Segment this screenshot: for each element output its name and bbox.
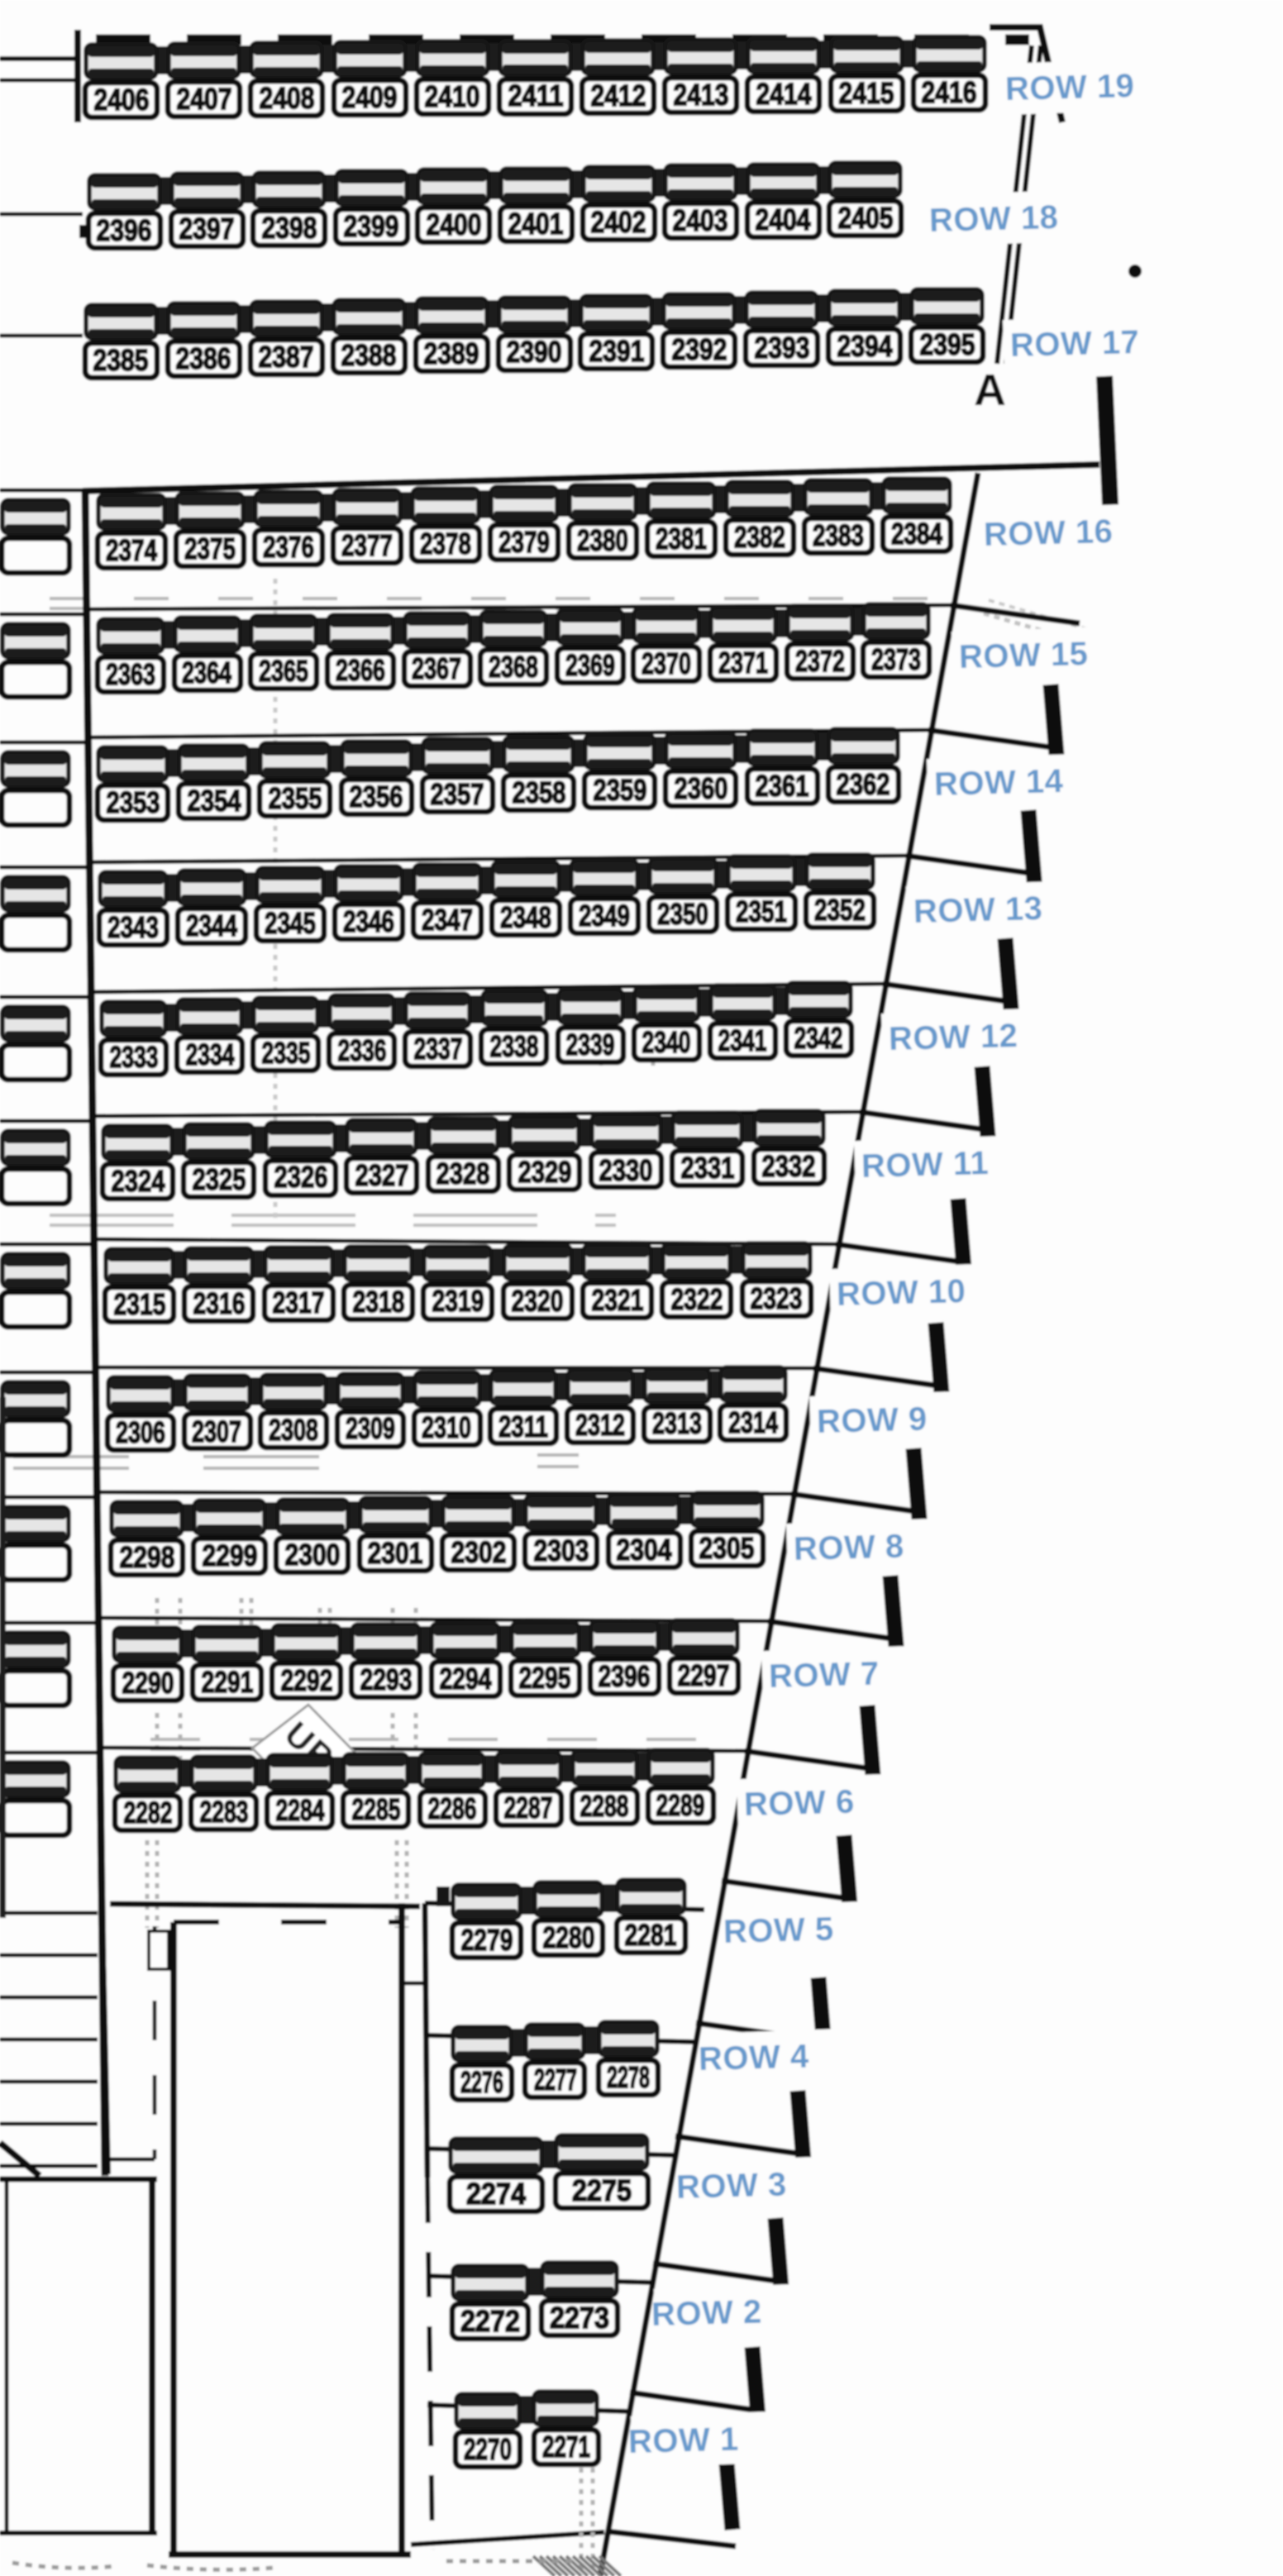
- svg-text:2403: 2403: [673, 203, 728, 237]
- svg-text:2384: 2384: [891, 517, 942, 551]
- svg-text:2389: 2389: [424, 336, 479, 370]
- svg-text:2347: 2347: [422, 903, 473, 937]
- svg-text:2278: 2278: [607, 2060, 650, 2094]
- svg-text:2346: 2346: [343, 904, 394, 938]
- svg-text:2313: 2313: [652, 1406, 702, 1440]
- svg-text:ROW 5: ROW 5: [723, 1911, 834, 1950]
- svg-text:2377: 2377: [341, 528, 393, 562]
- svg-text:2302: 2302: [451, 1535, 507, 1569]
- svg-text:2340: 2340: [642, 1025, 691, 1059]
- svg-text:2361: 2361: [756, 769, 809, 803]
- svg-text:2271: 2271: [542, 2430, 590, 2464]
- svg-text:2282: 2282: [124, 1796, 173, 1829]
- svg-text:2376: 2376: [263, 530, 314, 564]
- svg-text:2375: 2375: [184, 532, 236, 565]
- svg-text:2370: 2370: [641, 646, 691, 680]
- svg-text:2371: 2371: [718, 646, 768, 680]
- svg-text:2330: 2330: [599, 1153, 653, 1187]
- svg-text:2396: 2396: [97, 213, 152, 247]
- svg-text:ROW 18: ROW 18: [928, 199, 1058, 239]
- svg-text:2289: 2289: [656, 1788, 705, 1822]
- svg-text:2333: 2333: [110, 1040, 159, 1074]
- svg-text:2344: 2344: [186, 909, 237, 942]
- svg-text:2285: 2285: [352, 1792, 401, 1826]
- svg-text:2411: 2411: [508, 79, 564, 112]
- svg-text:ROW 19: ROW 19: [1004, 68, 1134, 107]
- svg-text:2380: 2380: [577, 523, 628, 557]
- svg-text:2352: 2352: [814, 893, 866, 927]
- svg-text:2293: 2293: [360, 1662, 413, 1696]
- svg-text:2388: 2388: [341, 338, 397, 372]
- svg-text:2318: 2318: [353, 1285, 405, 1319]
- svg-text:2410: 2410: [425, 79, 480, 113]
- svg-text:ROW 8: ROW 8: [793, 1529, 904, 1567]
- svg-text:2294: 2294: [440, 1662, 492, 1696]
- svg-text:2292: 2292: [281, 1663, 333, 1697]
- svg-text:2382: 2382: [734, 520, 785, 554]
- svg-text:2321: 2321: [592, 1283, 644, 1317]
- svg-text:2273: 2273: [550, 2301, 609, 2335]
- svg-text:2297: 2297: [678, 1658, 730, 1692]
- svg-text:A: A: [974, 365, 1006, 415]
- svg-text:2373: 2373: [871, 642, 921, 676]
- svg-text:2390: 2390: [507, 335, 562, 369]
- svg-text:2279: 2279: [461, 1923, 513, 1957]
- svg-text:ROW 2: ROW 2: [651, 2294, 762, 2333]
- svg-text:2400: 2400: [427, 208, 482, 241]
- svg-text:2408: 2408: [260, 81, 315, 115]
- svg-text:2332: 2332: [762, 1149, 816, 1183]
- svg-text:2416: 2416: [922, 75, 977, 109]
- svg-text:2337: 2337: [414, 1032, 463, 1066]
- svg-text:2404: 2404: [756, 203, 811, 236]
- svg-text:2348: 2348: [500, 900, 551, 934]
- svg-text:2345: 2345: [265, 906, 316, 940]
- svg-text:2357: 2357: [431, 777, 484, 811]
- svg-text:2275: 2275: [572, 2173, 632, 2207]
- svg-text:2276: 2276: [460, 2065, 503, 2099]
- svg-text:2291: 2291: [202, 1665, 254, 1699]
- svg-text:2412: 2412: [591, 79, 646, 112]
- svg-text:2307: 2307: [192, 1414, 241, 1448]
- svg-text:2272: 2272: [460, 2304, 520, 2338]
- svg-text:2383: 2383: [813, 518, 864, 552]
- svg-text:ROW 17: ROW 17: [1009, 324, 1139, 364]
- svg-text:2351: 2351: [736, 894, 787, 928]
- svg-text:2319: 2319: [432, 1284, 484, 1318]
- svg-text:2338: 2338: [490, 1029, 539, 1063]
- svg-text:2281: 2281: [625, 1918, 677, 1952]
- svg-text:2362: 2362: [837, 767, 890, 801]
- svg-text:2397: 2397: [179, 212, 235, 246]
- svg-text:2364: 2364: [182, 656, 231, 689]
- svg-text:2349: 2349: [579, 899, 630, 933]
- svg-text:ROW 12: ROW 12: [888, 1018, 1018, 1057]
- svg-text:2385: 2385: [93, 343, 149, 377]
- svg-text:2354: 2354: [188, 784, 241, 818]
- svg-text:2317: 2317: [273, 1286, 325, 1319]
- svg-text:2339: 2339: [566, 1028, 615, 1061]
- svg-text:ROW 4: ROW 4: [698, 2039, 809, 2077]
- svg-text:2392: 2392: [672, 332, 727, 366]
- svg-text:2308: 2308: [269, 1413, 318, 1447]
- svg-text:2290: 2290: [122, 1666, 174, 1700]
- svg-text:2374: 2374: [106, 533, 157, 567]
- svg-text:2270: 2270: [464, 2432, 512, 2466]
- svg-text:2328: 2328: [436, 1157, 490, 1190]
- svg-text:2358: 2358: [513, 775, 566, 809]
- svg-text:2305: 2305: [699, 1531, 755, 1565]
- svg-text:2329: 2329: [518, 1155, 572, 1189]
- svg-text:2350: 2350: [657, 897, 708, 931]
- svg-text:2315: 2315: [114, 1287, 166, 1321]
- svg-text:2322: 2322: [671, 1282, 723, 1316]
- svg-text:ROW 3: ROW 3: [675, 2167, 787, 2206]
- svg-text:ROW 16: ROW 16: [983, 513, 1113, 553]
- svg-text:2355: 2355: [269, 781, 322, 815]
- svg-text:2367: 2367: [412, 651, 461, 685]
- svg-text:2342: 2342: [794, 1021, 843, 1055]
- svg-text:2363: 2363: [106, 657, 155, 691]
- svg-text:2409: 2409: [342, 80, 398, 114]
- svg-text:ROW 7: ROW 7: [768, 1656, 880, 1695]
- svg-text:2414: 2414: [756, 77, 812, 111]
- svg-text:2341: 2341: [718, 1023, 767, 1057]
- svg-text:2407: 2407: [177, 82, 232, 116]
- svg-text:2381: 2381: [656, 522, 707, 556]
- svg-text:2300: 2300: [285, 1538, 341, 1572]
- svg-text:2331: 2331: [681, 1151, 735, 1185]
- svg-text:2336: 2336: [338, 1033, 387, 1067]
- svg-text:2299: 2299: [203, 1538, 258, 1572]
- svg-text:ROW 15: ROW 15: [958, 636, 1088, 675]
- svg-text:2274: 2274: [466, 2177, 526, 2211]
- svg-text:2396: 2396: [599, 1659, 651, 1693]
- svg-text:2326: 2326: [274, 1160, 328, 1194]
- svg-text:2287: 2287: [504, 1791, 553, 1825]
- svg-text:2320: 2320: [512, 1284, 564, 1318]
- svg-text:2415: 2415: [839, 76, 894, 110]
- svg-text:2369: 2369: [565, 648, 615, 682]
- svg-text:2301: 2301: [368, 1536, 423, 1570]
- svg-text:2323: 2323: [751, 1281, 803, 1315]
- svg-text:2405: 2405: [838, 201, 894, 235]
- svg-text:2284: 2284: [276, 1793, 325, 1827]
- svg-text:2391: 2391: [589, 334, 645, 368]
- svg-text:2399: 2399: [344, 209, 399, 243]
- svg-text:2395: 2395: [920, 327, 975, 361]
- svg-text:ROW 13: ROW 13: [913, 890, 1042, 930]
- svg-text:2394: 2394: [837, 329, 893, 363]
- svg-text:2288: 2288: [580, 1789, 629, 1823]
- svg-text:2280: 2280: [543, 1920, 595, 1954]
- svg-text:2366: 2366: [336, 653, 385, 687]
- svg-text:2335: 2335: [262, 1036, 311, 1070]
- svg-text:2298: 2298: [120, 1540, 175, 1574]
- svg-text:2413: 2413: [674, 78, 729, 112]
- svg-text:2312: 2312: [575, 1408, 625, 1442]
- svg-text:2356: 2356: [350, 780, 403, 813]
- svg-text:2343: 2343: [107, 910, 159, 944]
- svg-text:ROW 9: ROW 9: [816, 1401, 928, 1440]
- svg-text:ROW 1: ROW 1: [627, 2421, 739, 2460]
- svg-text:ROW 10: ROW 10: [836, 1273, 966, 1313]
- svg-text:2334: 2334: [186, 1038, 235, 1071]
- svg-text:2360: 2360: [675, 771, 728, 805]
- svg-text:2311: 2311: [498, 1410, 548, 1443]
- svg-text:2306: 2306: [116, 1415, 165, 1449]
- svg-text:2372: 2372: [795, 644, 845, 678]
- svg-text:2295: 2295: [519, 1661, 571, 1695]
- svg-text:2314: 2314: [728, 1405, 778, 1439]
- svg-text:2401: 2401: [508, 207, 564, 241]
- svg-text:2378: 2378: [420, 527, 471, 561]
- svg-text:2402: 2402: [591, 205, 646, 239]
- svg-text:2277: 2277: [534, 2063, 577, 2097]
- svg-text:2368: 2368: [489, 650, 538, 684]
- svg-text:2316: 2316: [193, 1286, 246, 1320]
- svg-text:2398: 2398: [262, 211, 317, 245]
- svg-text:2286: 2286: [428, 1791, 477, 1825]
- svg-text:2359: 2359: [594, 773, 647, 807]
- svg-text:2386: 2386: [176, 341, 231, 375]
- svg-text:2304: 2304: [617, 1533, 672, 1567]
- svg-text:2283: 2283: [200, 1795, 249, 1829]
- svg-text:ROW 14: ROW 14: [933, 763, 1064, 803]
- svg-text:2324: 2324: [112, 1164, 165, 1198]
- svg-text:2310: 2310: [422, 1410, 471, 1444]
- svg-text:2379: 2379: [498, 525, 550, 559]
- svg-text:ROW 6: ROW 6: [743, 1784, 855, 1823]
- svg-text:2406: 2406: [94, 83, 150, 117]
- svg-text:2365: 2365: [259, 654, 308, 688]
- svg-text:2353: 2353: [107, 785, 160, 819]
- svg-text:2327: 2327: [355, 1158, 409, 1192]
- svg-text:2303: 2303: [534, 1534, 589, 1567]
- svg-text:2325: 2325: [193, 1162, 246, 1196]
- svg-text:2387: 2387: [259, 340, 314, 374]
- svg-text:2309: 2309: [346, 1411, 395, 1445]
- svg-text:ROW 11: ROW 11: [861, 1145, 989, 1185]
- svg-text:2393: 2393: [755, 331, 810, 365]
